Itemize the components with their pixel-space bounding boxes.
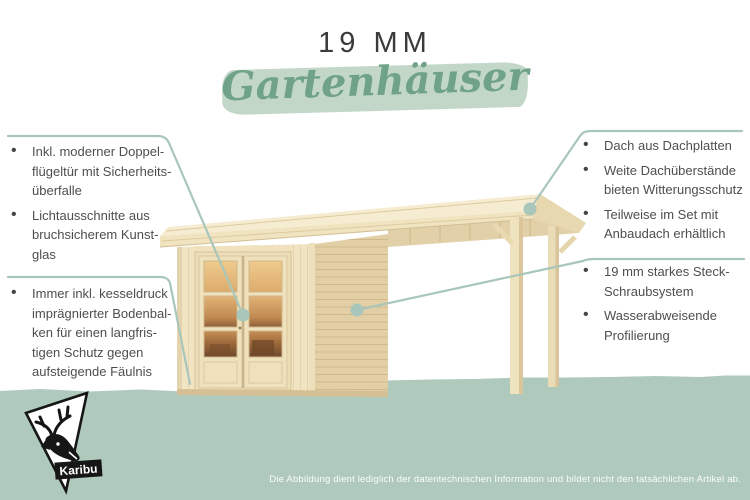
feature-list-left-bottom: Immer inkl. kesseldruck imprägnierter Bo…	[8, 284, 208, 382]
feature-item: Lichtausschnitte aus bruchsicherem Kunst…	[8, 206, 203, 265]
feature-item: Wasserabweisende Profilierung	[580, 306, 750, 345]
feature-list-right-bottom: 19 mm starkes Steck- SchraubsystemWasser…	[580, 262, 750, 345]
feature-list-right-top: Dach aus DachplattenWeite Dachüberstände…	[580, 136, 750, 244]
feature-item: Weite Dachüberstände bieten Witterungssc…	[580, 161, 750, 200]
canopy-front-post	[494, 217, 523, 394]
feature-item: 19 mm starkes Steck- Schraubsystem	[580, 262, 750, 301]
karibu-logo-text: Karibu	[59, 462, 98, 479]
feature-item: Dach aus Dachplatten	[580, 136, 750, 156]
callout-dot-door	[237, 309, 250, 322]
callout-dot-roof	[524, 203, 537, 216]
feature-note-left-top: Inkl. moderner Doppel- flügeltür mit Sic…	[8, 142, 203, 269]
feature-note-right-bottom: 19 mm starkes Steck- SchraubsystemWasser…	[580, 262, 750, 350]
canopy-back-post	[548, 226, 575, 387]
side-wall	[315, 234, 388, 394]
feature-note-left-bottom: Immer inkl. kesseldruck imprägnierter Bo…	[8, 284, 208, 387]
feature-item: Teilweise im Set mit Anbaudach erhältlic…	[580, 205, 750, 244]
feature-list-left-top: Inkl. moderner Doppel- flügeltür mit Sic…	[8, 142, 203, 264]
feature-note-right-top: Dach aus DachplattenWeite Dachüberstände…	[580, 136, 750, 249]
feature-item: Immer inkl. kesseldruck imprägnierter Bo…	[8, 284, 208, 382]
feature-item: Inkl. moderner Doppel- flügeltür mit Sic…	[8, 142, 203, 201]
garden-house	[160, 194, 586, 397]
callout-dot-wall	[351, 304, 364, 317]
disclaimer-text: Die Abbildung dient lediglich der datent…	[269, 474, 741, 485]
infographic-page: Karibu 19 MM Gartenhäuser Inkl. moderner…	[0, 0, 750, 500]
